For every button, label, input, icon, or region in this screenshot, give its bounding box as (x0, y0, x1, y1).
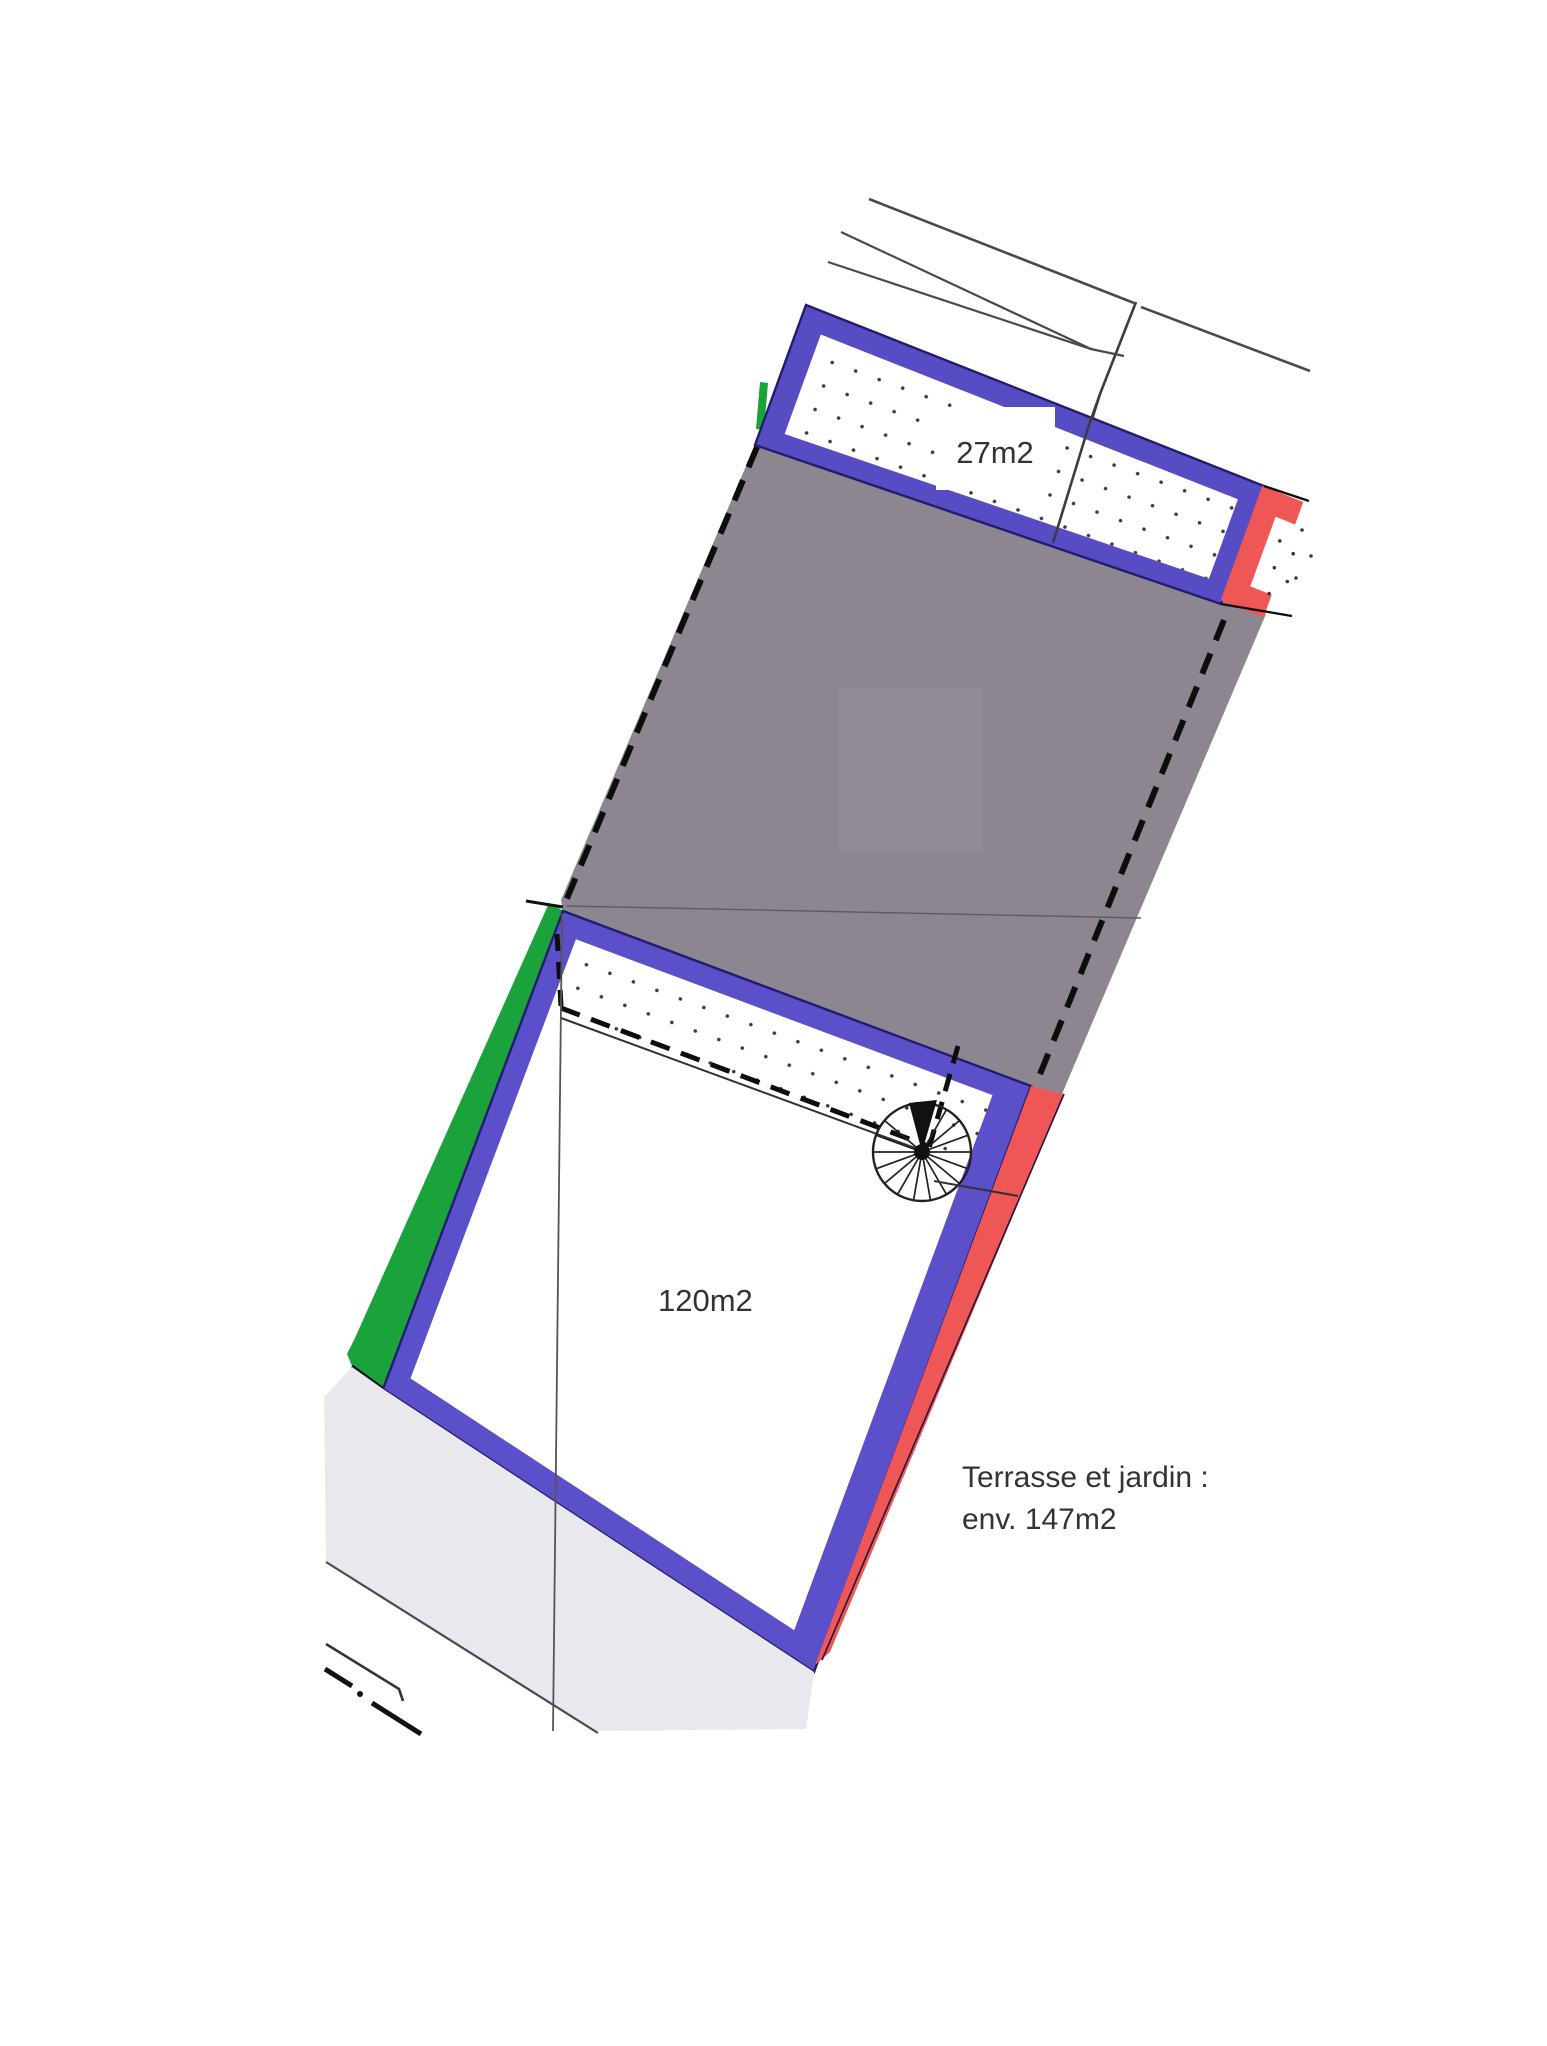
svg-text:Terrasse et jardin :: Terrasse et jardin : (962, 1461, 1209, 1494)
svg-text:27m2: 27m2 (956, 435, 1034, 470)
svg-text:env. 147m2: env. 147m2 (962, 1503, 1117, 1536)
svg-text:120m2: 120m2 (658, 1283, 753, 1318)
